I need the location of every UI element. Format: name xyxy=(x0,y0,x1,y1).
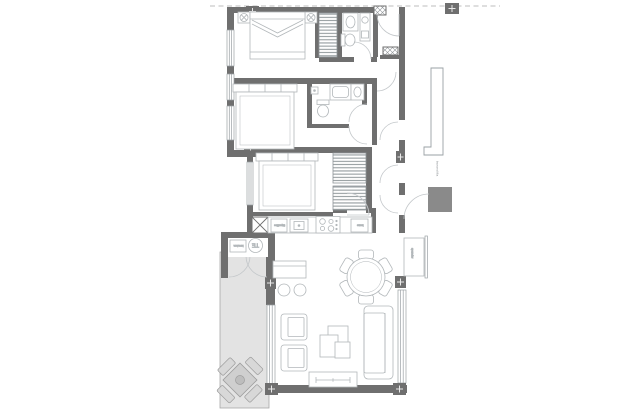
bedroom1-furniture xyxy=(238,12,317,59)
wall-left-3 xyxy=(227,100,234,106)
wardrobe-bed3-upper xyxy=(333,153,366,183)
living-entry-door xyxy=(404,194,429,219)
wardrobe-bed1 xyxy=(319,13,337,57)
pillar xyxy=(395,276,406,288)
fridge: frigorífico xyxy=(271,219,287,232)
window-bed1-left xyxy=(227,30,234,66)
oven-label: horno xyxy=(356,224,363,227)
hall-closet-door-c xyxy=(380,195,398,213)
wall-right-1 xyxy=(399,13,405,63)
headboard xyxy=(233,84,297,92)
kitchen-shaft xyxy=(252,217,268,233)
bedroom2-furniture xyxy=(233,84,297,149)
window-dining-nook xyxy=(425,236,427,278)
double-bed xyxy=(250,12,305,59)
wall-entry-bottom xyxy=(380,55,399,59)
armchair xyxy=(281,345,307,371)
living-room xyxy=(281,306,393,387)
wall-bed3-bottom xyxy=(253,212,333,216)
window-living-left xyxy=(267,305,275,385)
sofa xyxy=(364,306,393,379)
hob xyxy=(316,217,340,234)
washer-label: lavadora xyxy=(233,244,244,247)
bathroom1-door xyxy=(354,42,371,59)
wall-bed3-left-top xyxy=(247,157,253,162)
breakfast-bar xyxy=(273,261,306,296)
bedroom3-furniture xyxy=(256,153,318,210)
wall-left-2 xyxy=(227,66,234,74)
terrace xyxy=(207,252,273,413)
toilet xyxy=(341,34,355,46)
wall-wardrobe3-right xyxy=(366,153,372,213)
entrance-door xyxy=(377,14,399,36)
pillar xyxy=(445,3,459,14)
entry-mat xyxy=(374,6,386,15)
coffee-tables xyxy=(320,326,350,358)
wall-hall-left xyxy=(372,83,377,145)
stool xyxy=(294,284,306,296)
stair-railing: barandilla xyxy=(424,68,443,176)
bathroom1-fixtures xyxy=(341,13,370,46)
toilet xyxy=(317,100,329,117)
window-bed2-left-b xyxy=(227,106,234,140)
sink-vanity xyxy=(343,13,358,31)
laundry-closet: lavadora TE xyxy=(228,238,268,257)
kitchen-sink xyxy=(290,219,308,232)
headboard xyxy=(256,153,318,161)
wall-right-stub xyxy=(399,223,405,233)
sideboard-label: aparador xyxy=(411,248,414,258)
armchair xyxy=(281,314,307,340)
wall-top-right xyxy=(399,7,405,13)
shower-drain xyxy=(311,87,318,94)
sink-vanity xyxy=(351,84,364,100)
pillar xyxy=(265,383,278,395)
exterior-block xyxy=(428,187,452,212)
wall-left-4 xyxy=(227,140,234,157)
wall-bed1-bottom xyxy=(234,78,377,84)
window-bed3-left xyxy=(247,162,253,205)
hall-closet-door-b xyxy=(380,165,398,183)
wall-right-2 xyxy=(399,63,405,120)
floor-plan-canvas: barandilla xyxy=(0,0,620,415)
bathroom2-door xyxy=(349,104,367,122)
wall-closet-left xyxy=(221,232,228,278)
window-living-right xyxy=(398,290,406,383)
wall-bath1-bottom-l xyxy=(319,57,354,62)
pillar xyxy=(393,383,406,395)
dining-table xyxy=(347,258,385,296)
wall-bath2-bottom xyxy=(307,124,349,128)
water-heater: TE xyxy=(249,239,263,253)
wall-bath1-bottom-r xyxy=(371,57,377,62)
pillar xyxy=(265,277,276,289)
water-heater-label: TE xyxy=(252,242,259,248)
double-bed xyxy=(236,92,294,149)
floor-plan-page: barandilla xyxy=(0,0,620,415)
kitchen: frigorífico horno xyxy=(268,217,372,234)
dining-set xyxy=(339,250,393,304)
railing-label: barandilla xyxy=(436,161,440,176)
bathroom2-fixtures xyxy=(311,84,364,117)
wall-right-4 xyxy=(399,183,405,195)
sideboard: aparador xyxy=(404,238,424,276)
oven: horno xyxy=(351,219,368,232)
bathtub xyxy=(330,84,351,100)
double-bed xyxy=(259,161,315,210)
stool xyxy=(278,284,290,296)
bedroom2-door xyxy=(349,126,367,144)
wall-left-1 xyxy=(227,7,234,30)
pillar xyxy=(396,151,405,163)
washing-machine: lavadora xyxy=(230,240,246,252)
tv-bench xyxy=(309,372,357,387)
fridge-label: frigorífico xyxy=(273,224,285,227)
hall-top-door xyxy=(377,72,396,91)
hall-closet-door-a xyxy=(380,122,398,140)
wall-entry-left xyxy=(373,13,378,57)
entry-closet xyxy=(383,47,398,55)
shower-column xyxy=(360,13,370,41)
